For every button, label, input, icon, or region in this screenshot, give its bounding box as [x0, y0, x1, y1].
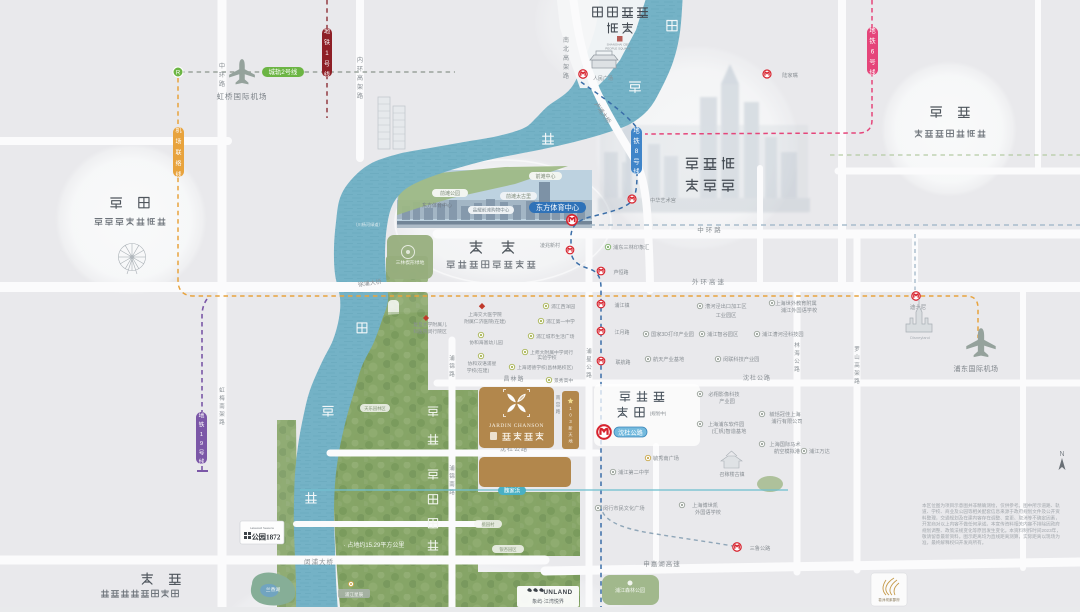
svg-text:地: 地: [869, 26, 876, 35]
svg-text:线: 线: [324, 71, 330, 79]
svg-text:葛洲坝紫郡府: 葛洲坝紫郡府: [878, 597, 900, 602]
svg-text:路: 路: [219, 80, 226, 88]
svg-text:航空模拟港: 航空模拟港: [774, 447, 801, 455]
svg-text:环: 环: [219, 72, 225, 79]
svg-text:路: 路: [219, 418, 225, 426]
svg-text:三林楔形绿地: 三林楔形绿地: [396, 259, 425, 266]
svg-text:浦江第一中学: 浦江第一中学: [546, 318, 575, 325]
svg-text:产业园: 产业园: [719, 397, 735, 405]
svg-text:高: 高: [854, 361, 860, 369]
svg-text:新: 新: [568, 425, 572, 432]
svg-text:线: 线: [869, 68, 876, 77]
svg-text:浦江外国语学校: 浦江外国语学校: [781, 306, 817, 314]
svg-text:道、学校、商业及公园等相关配套信息来源于政府规划文件及公开资: 道、学校、商业及公园等相关配套信息来源于政府规划文件及公开资: [922, 508, 1060, 515]
svg-text:国家3D打印产业园: 国家3D打印产业园: [651, 330, 694, 338]
svg-text:铁: 铁: [869, 36, 876, 45]
svg-text:东方体育中心: 东方体育中心: [422, 202, 452, 209]
svg-text:沈杜公路: 沈杜公路: [618, 429, 644, 437]
svg-text:号: 号: [869, 58, 875, 66]
svg-text:南: 南: [563, 36, 569, 44]
svg-text:开发商对以上内容不做任何承诺。本宣传资料相关内容不排除因政府: 开发商对以上内容不做任何承诺。本宣传资料相关内容不排除因政府: [922, 521, 1060, 528]
svg-text:梅: 梅: [219, 394, 225, 402]
svg-text:架: 架: [563, 63, 569, 71]
svg-text:路: 路: [854, 377, 860, 385]
svg-text:学校(在建): 学校(在建): [467, 367, 490, 374]
svg-text:宫: 宫: [556, 401, 561, 408]
svg-text:地: 地: [633, 126, 640, 135]
svg-text:环: 环: [357, 66, 363, 73]
svg-text:Lakeward Seasons: Lakeward Seasons: [250, 526, 274, 530]
svg-text:铁: 铁: [633, 136, 640, 145]
svg-text:(规划中): (规划中): [650, 410, 667, 417]
svg-text:公园1872: 公园1872: [252, 533, 281, 542]
svg-text:三鲁公路: 三鲁公路: [750, 544, 772, 552]
svg-text:浦: 浦: [449, 354, 455, 362]
svg-text:兰香湖: 兰香湖: [266, 586, 281, 593]
svg-text:号: 号: [324, 61, 330, 68]
svg-text:高: 高: [357, 74, 363, 82]
svg-text:申嘉湖高速: 申嘉湖高速: [643, 559, 681, 568]
svg-text:航天产业基地: 航天产业基地: [653, 355, 684, 363]
svg-text:景秀高中: 景秀高中: [554, 377, 573, 384]
svg-text:路: 路: [449, 370, 455, 378]
svg-text:凌兆新村: 凌兆新村: [540, 242, 560, 249]
svg-text:浦江镇: 浦江镇: [614, 302, 629, 309]
svg-text:路: 路: [563, 72, 569, 80]
svg-text:1: 1: [325, 50, 329, 57]
svg-text:昌林路: 昌林路: [503, 375, 524, 383]
svg-text:天乐园林区: 天乐园林区: [364, 405, 386, 412]
svg-text:上师大附属中学闵行: 上师大附属中学闵行: [530, 349, 573, 356]
svg-text:锦: 锦: [449, 362, 455, 370]
svg-text:闵行市民文化广场: 闵行市民文化广场: [603, 504, 645, 512]
svg-text:PEOPLE SQUARE: PEOPLE SQUARE: [605, 47, 631, 51]
svg-text:高: 高: [563, 54, 569, 62]
svg-text:南: 南: [449, 480, 455, 488]
svg-text:络: 络: [175, 160, 181, 168]
svg-text:号: 号: [633, 157, 639, 165]
svg-text:附属仁济医院(在建): 附属仁济医院(在建): [464, 318, 506, 325]
svg-text:路: 路: [556, 408, 561, 415]
svg-text:芦恒路: 芦恒路: [613, 269, 628, 276]
svg-text:8: 8: [635, 148, 639, 155]
svg-text:JARDIN CHANSON: JARDIN CHANSON: [489, 423, 544, 429]
svg-text:浦江城市生活广场: 浦江城市生活广场: [536, 333, 575, 340]
svg-text:协和海富幼儿园: 协和海富幼儿园: [469, 339, 503, 346]
svg-text:闵联科技产业园: 闵联科技产业园: [723, 355, 759, 363]
svg-text:上海国际马术: 上海国际马术: [769, 440, 800, 448]
svg-text:上海世外教育附属: 上海世外教育附属: [775, 299, 817, 307]
svg-text:桃园村: 桃园村: [482, 521, 496, 528]
svg-text:6: 6: [871, 49, 875, 56]
svg-text:城轨2号线: 城轨2号线: [269, 67, 298, 76]
svg-text:浦江第二中学: 浦江第二中学: [618, 468, 649, 476]
svg-text:线: 线: [633, 167, 640, 176]
svg-text:外环高速: 外环高速: [692, 277, 726, 286]
svg-text:南: 南: [219, 402, 225, 410]
svg-text:N: N: [1059, 451, 1064, 458]
svg-text:浦: 浦: [449, 464, 455, 472]
svg-text:线: 线: [199, 458, 205, 466]
svg-text:架: 架: [854, 370, 860, 377]
svg-text:锦: 锦: [449, 472, 455, 480]
svg-text:魏家浜: 魏家浜: [504, 486, 521, 494]
svg-text:中: 中: [219, 62, 225, 70]
svg-text:料整理，交通规划及在建内容存在调整、变更、取消等不确定因素，: 料整理，交通规划及在建内容存在调整、变更、取消等不确定因素，: [922, 514, 1060, 521]
svg-text:路: 路: [586, 371, 592, 379]
svg-text:敬请留意最新资料。图示距离均为直线距离测算，实际距离以现场为: 敬请留意最新资料。图示距离均为直线距离测算，实际距离以现场为: [922, 533, 1060, 540]
svg-text:9: 9: [200, 441, 203, 447]
svg-text:东方体育中心: 东方体育中心: [536, 203, 579, 212]
svg-text:南: 南: [556, 394, 561, 401]
svg-text:浦: 浦: [586, 347, 592, 355]
svg-text:号: 号: [199, 449, 205, 456]
svg-text:〔川杨河绿道〕: 〔川杨河绿道〕: [353, 221, 382, 228]
svg-text:毓恬冠佳上海: 毓恬冠佳上海: [769, 410, 800, 418]
svg-text:上海诺德学校(昌林路校区): 上海诺德学校(昌林路校区): [517, 364, 573, 371]
svg-text:前滩公园: 前滩公园: [440, 190, 460, 197]
svg-text:浦江星辰: 浦江星辰: [345, 591, 364, 598]
svg-text:架: 架: [357, 83, 363, 91]
svg-text:联: 联: [175, 149, 181, 157]
svg-text:Disneyland: Disneyland: [910, 335, 930, 340]
svg-text:工业园区: 工业园区: [716, 311, 737, 319]
svg-text:铁: 铁: [199, 421, 205, 429]
svg-text:罗: 罗: [854, 346, 860, 353]
svg-text:浦东国际机场: 浦东国际机场: [954, 364, 999, 373]
svg-text:银杏园区: 银杏园区: [499, 546, 517, 553]
svg-text:规划调整、政策法规变化等原因发生变化。本资料制作时间2023: 规划调整、政策法规变化等原因发生变化。本资料制作时间2023年，: [922, 527, 1061, 534]
svg-text:浦行有限公司: 浦行有限公司: [771, 417, 802, 425]
svg-text:地: 地: [324, 28, 330, 36]
svg-text:海: 海: [794, 349, 800, 357]
svg-text:中华艺术宫: 中华艺术宫: [650, 196, 676, 204]
svg-text:闵浦大桥: 闵浦大桥: [304, 557, 334, 566]
svg-text:线: 线: [175, 171, 181, 179]
svg-text:架: 架: [219, 411, 225, 418]
svg-text:林: 林: [794, 341, 800, 349]
svg-text:(汇帆)智造基地: (汇帆)智造基地: [712, 427, 747, 435]
svg-text:沈杜公路: 沈杜公路: [743, 374, 771, 382]
svg-text:场: 场: [175, 138, 181, 146]
svg-text:R: R: [176, 71, 181, 77]
svg-text:协和双语浦星: 协和双语浦星: [468, 360, 497, 367]
svg-text:虹桥国际机场: 虹桥国际机场: [217, 91, 268, 101]
svg-text:山: 山: [854, 353, 860, 361]
svg-text:人民广场: 人民广场: [593, 75, 613, 82]
svg-text:前滩中心: 前滩中心: [535, 173, 555, 180]
svg-text:星: 星: [586, 356, 592, 363]
svg-text:联航路: 联航路: [615, 359, 630, 366]
svg-text:上海博世凯: 上海博世凯: [692, 501, 718, 509]
svg-text:1: 1: [200, 432, 203, 438]
svg-text:复旦大学附属儿: 复旦大学附属儿: [413, 321, 447, 328]
svg-text:召稼楼古镇: 召稼楼古镇: [719, 471, 744, 478]
svg-text:江月路: 江月路: [614, 329, 629, 336]
svg-text:浦江漕河泾科技园: 浦江漕河泾科技园: [762, 330, 804, 338]
svg-text:上海浦东软件园: 上海浦东软件园: [708, 420, 744, 428]
svg-text:晶耀前滩购物中心: 晶耀前滩购物中心: [473, 207, 510, 214]
svg-text:准，最终解释权归开发商所有。: 准，最终解释权归开发商所有。: [922, 539, 986, 546]
svg-text:必翔影像科技: 必翔影像科技: [708, 390, 739, 398]
svg-text:中环路: 中环路: [697, 225, 723, 234]
svg-text:本区位图为项目示意图并非精确测绘，仅供参考。图中所示道路、轨: 本区位图为项目示意图并非精确测绘，仅供参考。图中所示道路、轨: [922, 502, 1060, 509]
svg-text:内: 内: [357, 56, 363, 64]
svg-text:路: 路: [794, 365, 800, 373]
svg-text:· 占地约15.29平方公里: · 占地约15.29平方公里: [344, 541, 405, 549]
svg-text:浦江西洋园: 浦江西洋园: [551, 303, 575, 310]
svg-text:公: 公: [794, 359, 800, 365]
svg-text:浦江万达: 浦江万达: [809, 447, 830, 455]
svg-text:地: 地: [199, 412, 205, 420]
svg-text:路: 路: [357, 92, 364, 100]
svg-text:铁: 铁: [324, 38, 330, 46]
svg-text:前滩太古里: 前滩太古里: [506, 193, 531, 200]
svg-text:浦江智谷园区: 浦江智谷园区: [707, 330, 738, 338]
svg-text:象屿·江湾悦界: 象屿·江湾悦界: [532, 598, 564, 605]
svg-text:科医院闵行院区: 科医院闵行院区: [413, 328, 447, 335]
svg-text:漕河泾出口加工区: 漕河泾出口加工区: [705, 302, 747, 310]
svg-text:机: 机: [175, 127, 181, 135]
svg-text:虹: 虹: [219, 386, 225, 394]
svg-text:上海交大医学院: 上海交大医学院: [468, 311, 502, 318]
svg-text:浦东三林印象汇: 浦东三林印象汇: [613, 243, 649, 251]
svg-text:实验学校: 实验学校: [537, 354, 556, 361]
svg-text:浦江森林公园: 浦江森林公园: [615, 587, 645, 594]
svg-text:外国语学校: 外国语学校: [695, 508, 721, 516]
svg-text:UNLAND: UNLAND: [543, 589, 572, 596]
svg-text:公: 公: [586, 365, 592, 371]
svg-text:毓秀南广场: 毓秀南广场: [653, 454, 679, 462]
svg-text:陆家嘴: 陆家嘴: [782, 71, 798, 79]
svg-text:北: 北: [563, 45, 569, 53]
